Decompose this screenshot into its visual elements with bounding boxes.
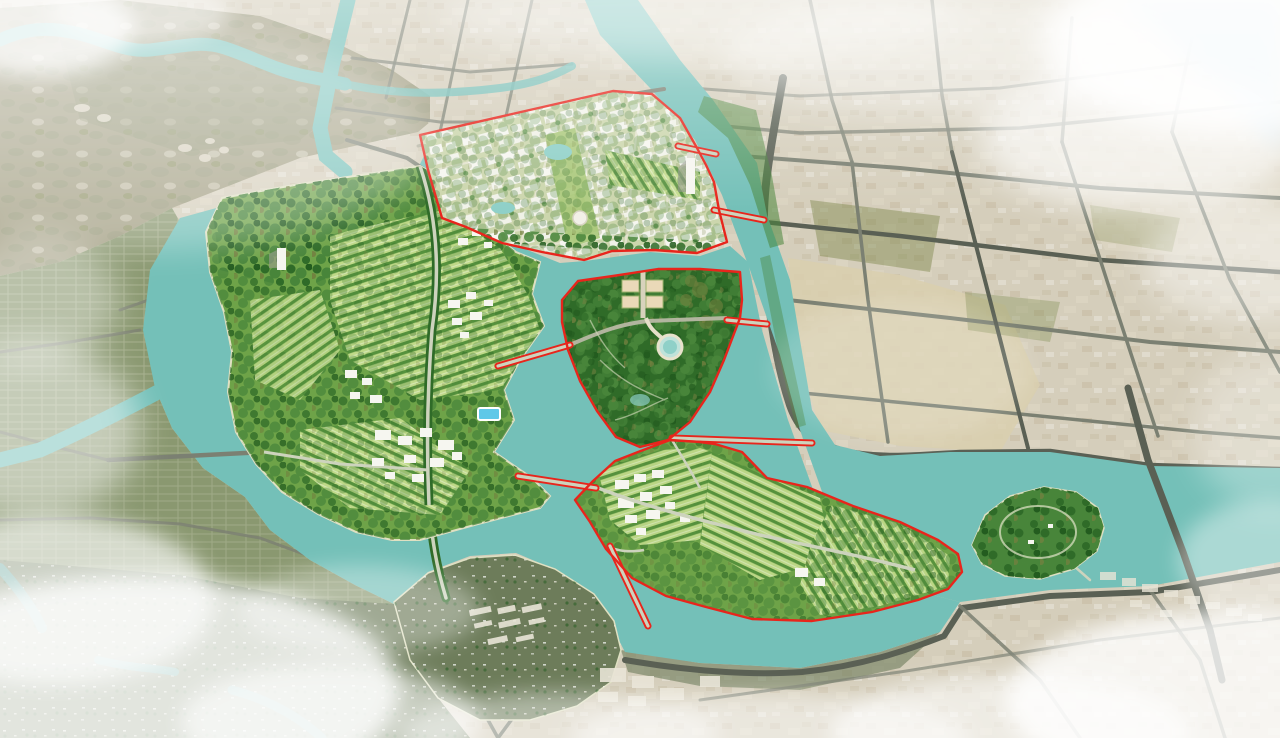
swimming-pool xyxy=(478,408,500,420)
dome-building xyxy=(573,211,587,225)
masterplan-svg xyxy=(0,0,1280,738)
west-highrise-tower xyxy=(277,248,286,270)
islet-pavilion-1 xyxy=(1028,540,1034,544)
lake-water xyxy=(663,340,677,354)
park-pond xyxy=(630,394,650,406)
masterplan-aerial-image xyxy=(0,0,1280,738)
islet-pavilion-2 xyxy=(1048,524,1053,528)
